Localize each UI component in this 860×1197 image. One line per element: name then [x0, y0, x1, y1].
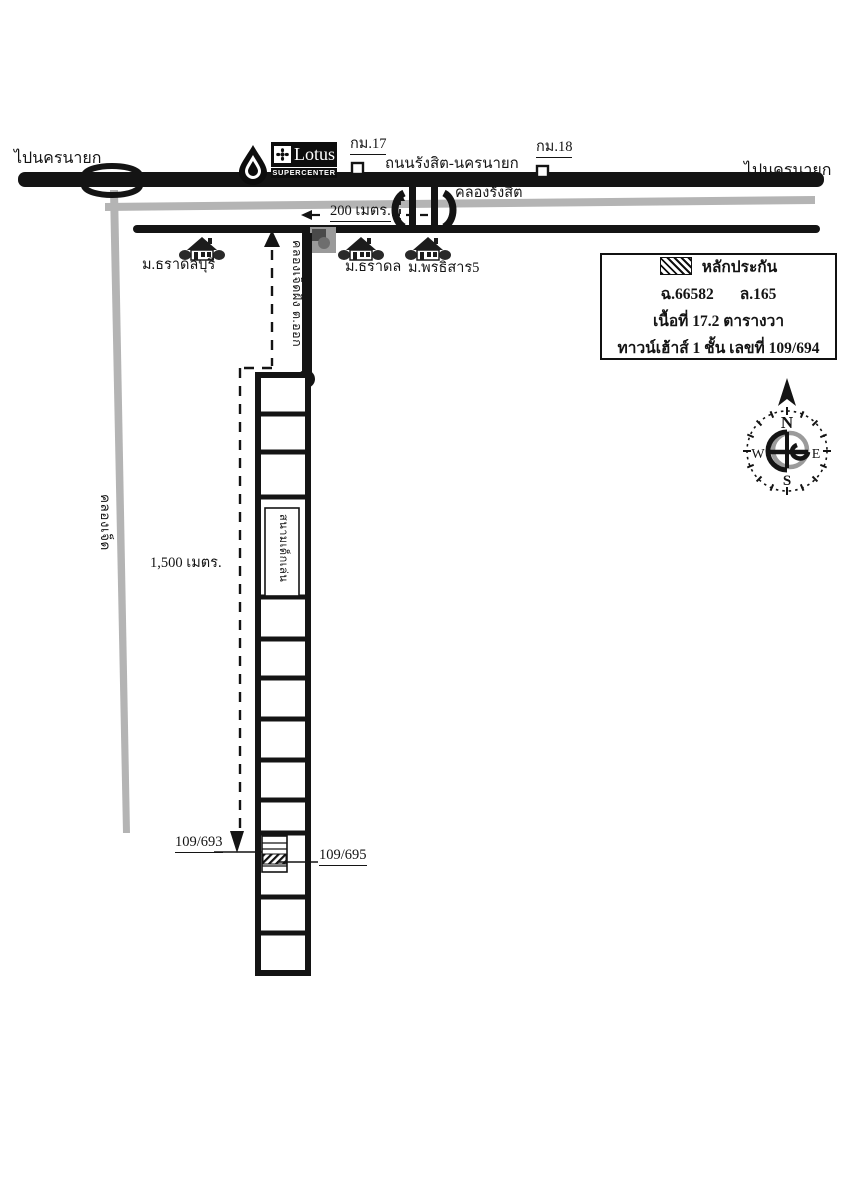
shop-logo-icon — [310, 227, 336, 253]
unit-693-label: 109/693 — [175, 835, 223, 853]
unit-695-label: 109/695 — [319, 848, 367, 866]
bridge-rangsit-icon — [395, 193, 453, 227]
collateral-hatch-swatch — [660, 257, 692, 275]
village-house-icon — [405, 237, 451, 260]
lotus-logo-text: Lotus — [294, 145, 335, 163]
direction-right: ไปนครนายก — [744, 162, 831, 180]
bridge-road-left-bar — [409, 187, 416, 227]
legend-deed-no: ฉ.66582 — [661, 281, 714, 306]
lotus-bud-icon — [239, 145, 267, 185]
village-label-3: ม.พรธิสาร5 — [408, 261, 479, 277]
village-house-icon — [338, 237, 384, 260]
km17-marker — [352, 163, 363, 174]
village-label-1: ม.ธราดลบุรี — [142, 258, 215, 274]
location-map: N W E S ไปนครนายก ไปนครนายก กม.17 กม.18 … — [0, 0, 860, 1197]
legend-title: หลักประกัน — [702, 254, 778, 279]
road-name-label: ถนนรังสิต-นครนายก — [385, 156, 519, 173]
lotus-supercenter-logo: Lotus SUPERCENTER — [271, 142, 337, 178]
lower-road — [133, 225, 820, 233]
km18-marker — [537, 166, 548, 177]
canal-west-line — [110, 190, 130, 833]
legend-box: หลักประกัน ฉ.66582 ล.165 เนื้อที่ 17.2 ต… — [600, 253, 837, 360]
playground-label: สนามเด็กเล่น — [277, 514, 289, 582]
collateral-unit-box — [262, 836, 287, 872]
km17-label: กม.17 — [350, 137, 386, 155]
bridge-road-right-bar — [431, 187, 438, 227]
km18-label: กม.18 — [536, 140, 572, 158]
lotus-emblem-icon — [274, 146, 291, 163]
legend-area: เนื้อที่ 17.2 ตารางวา — [653, 308, 784, 333]
soi-label: คลองเจ็ดฝั่ง ต.ออก — [289, 240, 303, 347]
globe-icon — [766, 432, 808, 470]
canal-rangsit-label: คลองรังสิต — [455, 186, 523, 202]
compass-s: S — [783, 473, 791, 489]
compass-w: W — [751, 447, 765, 462]
canal-west-label: คลองเจ็ด — [97, 494, 112, 551]
legend-detail: ทาวน์เฮ้าส์ 1 ชั้น เลขที่ 109/694 — [618, 335, 820, 360]
direction-left: ไปนครนายก — [14, 150, 101, 168]
map-drawing: N W E S — [0, 0, 860, 1197]
distance-1500-label: 1,500 เมตร. — [150, 556, 222, 572]
townhouse-strip — [258, 375, 308, 973]
north-arrow-icon — [778, 378, 796, 406]
distance-200-label: 200 เมตร. — [330, 204, 391, 222]
village-label-2: ม.ธราดล — [345, 260, 401, 276]
compass-rose: N W E S — [743, 378, 831, 495]
legend-land-no: ล.165 — [740, 281, 777, 306]
lotus-logo-subtitle: SUPERCENTER — [271, 167, 337, 178]
compass-n: N — [781, 413, 794, 432]
compass-e: E — [812, 447, 821, 462]
